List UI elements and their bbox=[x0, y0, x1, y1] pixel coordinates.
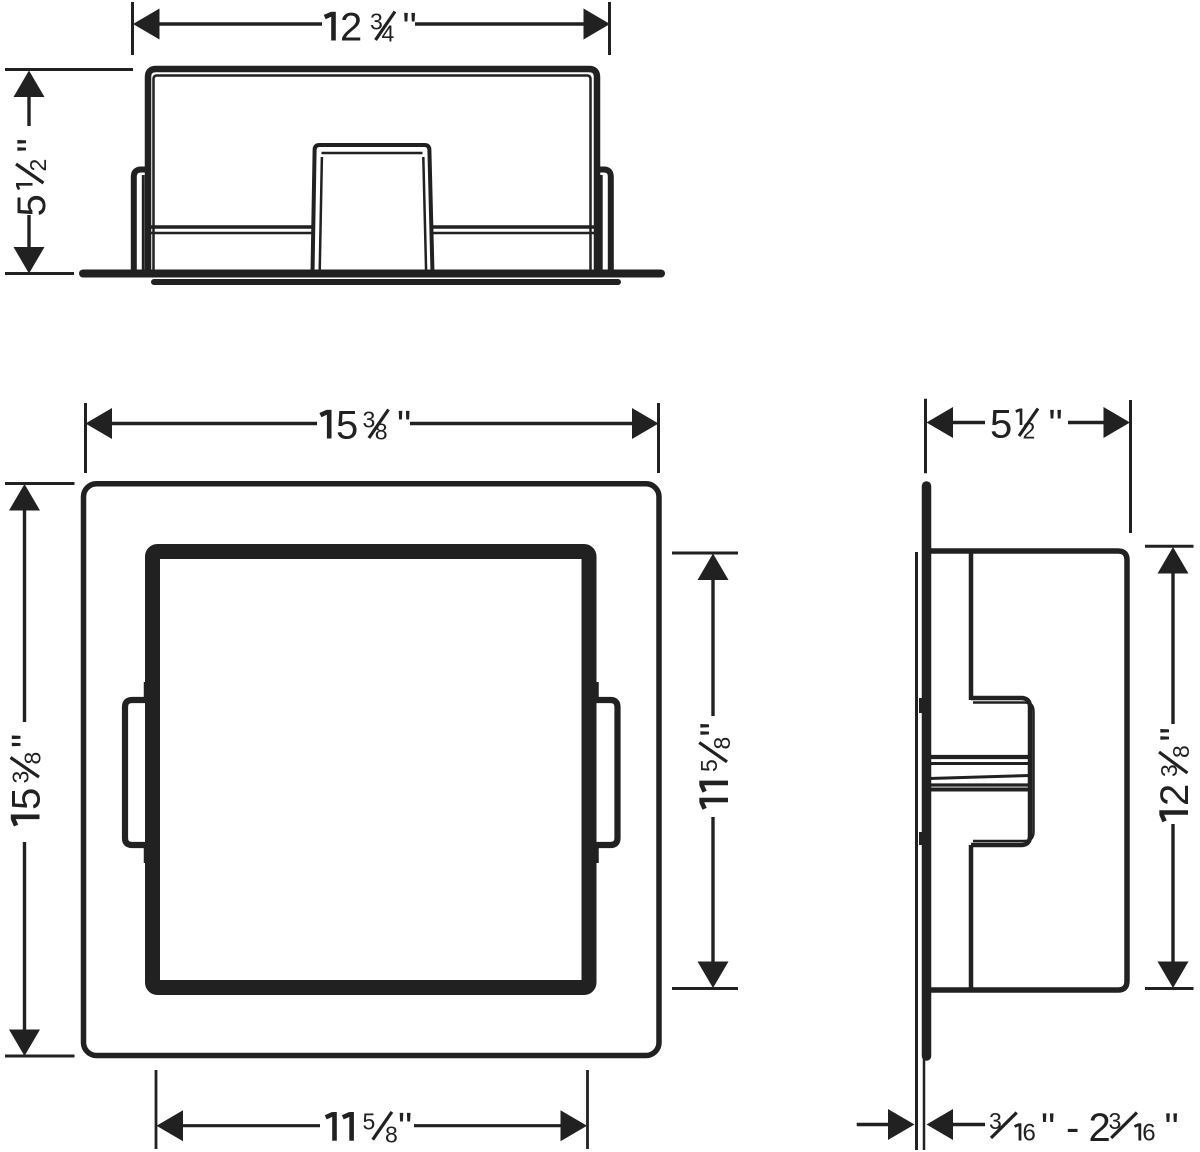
svg-text:": " bbox=[1153, 727, 1197, 741]
svg-text:": " bbox=[1041, 1106, 1055, 1150]
svg-text:8: 8 bbox=[375, 419, 388, 445]
svg-text:8: 8 bbox=[709, 737, 735, 750]
svg-text:2: 2 bbox=[1153, 784, 1197, 806]
svg-text:-: - bbox=[1066, 1106, 1079, 1150]
svg-text:": " bbox=[1049, 403, 1063, 447]
svg-text:2: 2 bbox=[1023, 418, 1036, 444]
svg-text:5: 5 bbox=[336, 404, 358, 448]
svg-text:8: 8 bbox=[385, 1122, 398, 1148]
svg-text:": " bbox=[398, 1106, 412, 1150]
svg-text:": " bbox=[5, 734, 49, 748]
svg-text:5: 5 bbox=[990, 403, 1012, 447]
svg-text:": " bbox=[403, 6, 417, 50]
svg-text:8: 8 bbox=[1168, 745, 1194, 758]
svg-text:8: 8 bbox=[20, 752, 46, 765]
svg-text:": " bbox=[10, 138, 54, 152]
svg-text:": " bbox=[397, 404, 411, 448]
svg-text:6: 6 bbox=[1023, 1120, 1036, 1147]
svg-text:5: 5 bbox=[363, 1109, 376, 1135]
svg-text:2: 2 bbox=[340, 6, 362, 50]
svg-text:6: 6 bbox=[1142, 1120, 1155, 1147]
svg-text:5: 5 bbox=[696, 759, 722, 772]
svg-text:5: 5 bbox=[10, 194, 54, 216]
svg-text:2: 2 bbox=[25, 159, 51, 172]
svg-text:": " bbox=[1165, 1106, 1179, 1150]
svg-text:4: 4 bbox=[382, 21, 395, 47]
svg-text:2: 2 bbox=[1089, 1106, 1111, 1150]
svg-text:5: 5 bbox=[5, 788, 49, 810]
svg-text:3: 3 bbox=[363, 407, 376, 433]
svg-text:3: 3 bbox=[8, 771, 34, 784]
svg-text:": " bbox=[693, 722, 737, 736]
